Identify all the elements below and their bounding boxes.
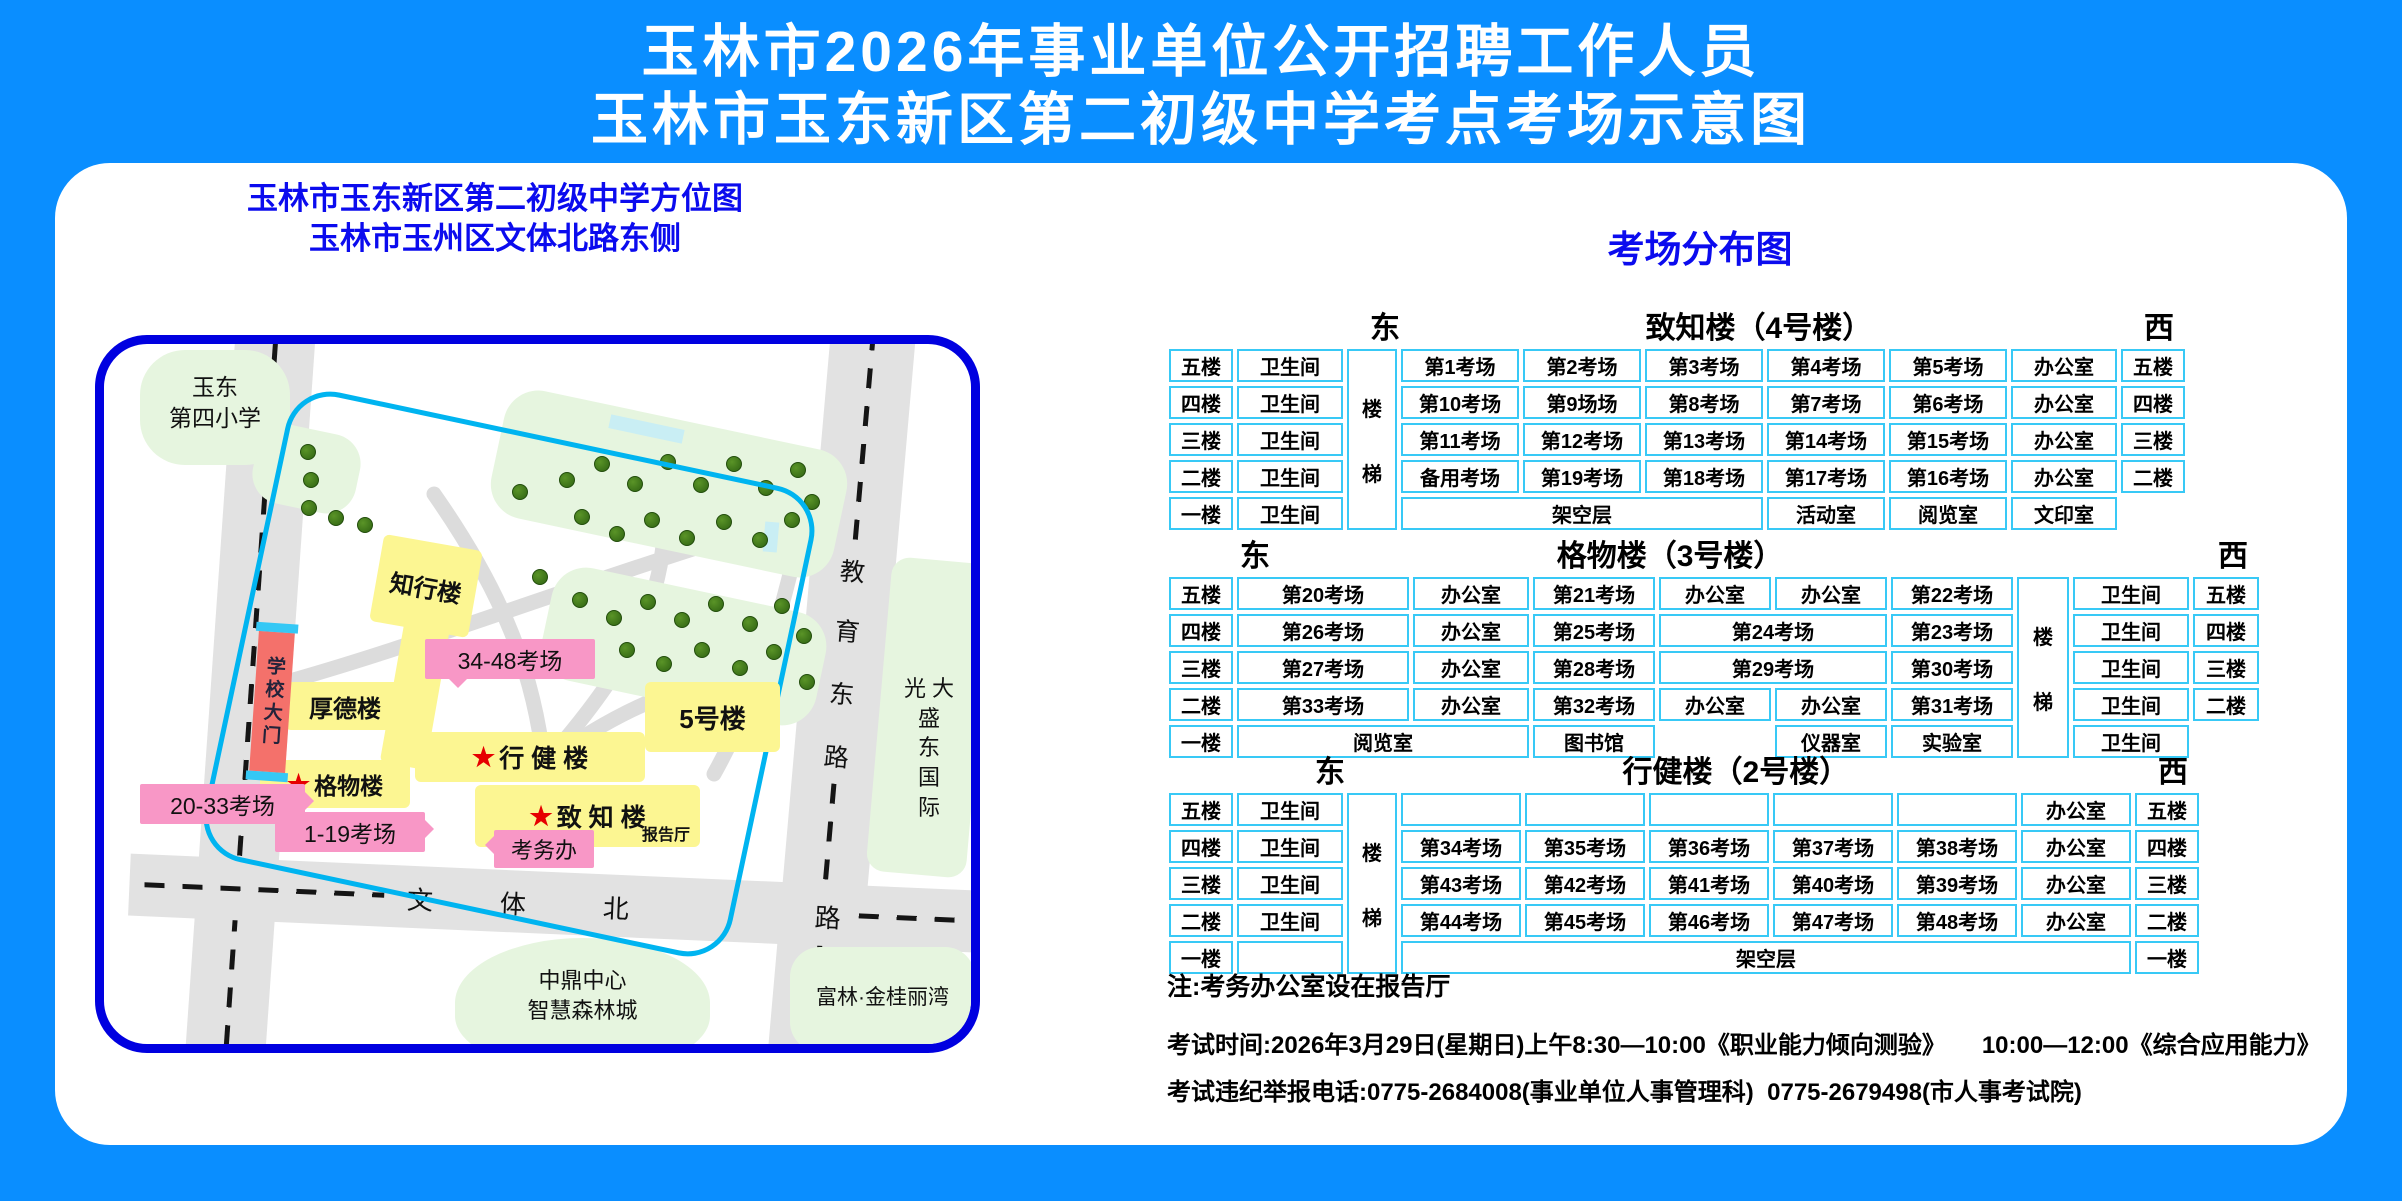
room-cell: 三楼 — [2121, 423, 2185, 456]
room-cell: 第29考场 — [1659, 651, 1887, 684]
room-cell: 第10考场 — [1401, 386, 1519, 419]
room-cell: 第44考场 — [1401, 904, 1521, 937]
room-cell: 第17考场 — [1767, 460, 1885, 493]
room-cell: 架空层 — [1401, 497, 1763, 530]
room-cell: 五楼 — [1169, 349, 1233, 382]
room-cell: 第12考场 — [1523, 423, 1641, 456]
empty-cell — [1897, 793, 2017, 826]
room-cell: 二楼 — [1169, 688, 1233, 721]
room-cell: 办公室 — [1659, 577, 1771, 610]
note-exam-time: 考试时间:2026年3月29日(星期日)上午8:30—10:00《职业能力倾向测… — [1167, 1025, 2321, 1060]
building-xingjianlou-label: 行 健 楼 — [499, 739, 588, 775]
room-cell: 第32考场 — [1533, 688, 1655, 721]
room-cell: 五楼 — [2121, 349, 2185, 382]
room-cell: 办公室 — [1413, 651, 1529, 684]
east-label: 东 — [1315, 747, 1345, 791]
room-cell: 第39考场 — [1897, 867, 2017, 900]
star-icon: ★ — [472, 742, 495, 773]
room-cell: 卫生间 — [1237, 423, 1343, 456]
room-cell: 二楼 — [2135, 904, 2199, 937]
table-xingjianlou: 东行健楼（2号楼）西五楼卫生间楼梯办公室五楼四楼卫生间第34考场第35考场第36… — [1165, 747, 2203, 978]
location-map: 教 育 东 路 文 体 北 路 玉东 第四小学 光 大 — [95, 335, 980, 1053]
room-cell: 二楼 — [2121, 460, 2185, 493]
note-report-phone: 考试违纪举报电话:0775-2684008(事业单位人事管理科) 0775-26… — [1167, 1072, 2321, 1107]
room-cell: 第37考场 — [1773, 830, 1893, 863]
room-cell: 办公室 — [2011, 423, 2117, 456]
room-cell: 第34考场 — [1401, 830, 1521, 863]
title-line1: 玉林市2026年事业单位公开招聘工作人员 — [0, 18, 2402, 86]
room-cell: 办公室 — [1413, 577, 1529, 610]
tag-exam-34-48-label: 34-48考场 — [458, 642, 563, 676]
room-cell: 三楼 — [2193, 651, 2259, 684]
room-cell: 第9场场 — [1523, 386, 1641, 419]
room-cell: 卫生间 — [1237, 793, 1343, 826]
room-cell: 第27考场 — [1237, 651, 1409, 684]
building-name: 格物楼（3号楼） — [1557, 531, 1784, 575]
stair-cell: 楼梯 — [2017, 577, 2069, 758]
room-cell: 卫生间 — [2073, 577, 2189, 610]
room-cell: 办公室 — [2021, 830, 2131, 863]
room-cell: 第31考场 — [1891, 688, 2013, 721]
room-cell: 第41考场 — [1649, 867, 1769, 900]
table-header: 东致知楼（4号楼）西 — [1165, 303, 2189, 345]
room-cell: 第36考场 — [1649, 830, 1769, 863]
tag-exam-34-48: 34-48考场 — [425, 639, 595, 679]
map-subtitle-line2: 玉林市玉州区文体北路东侧 — [55, 219, 935, 259]
room-cell: 第7考场 — [1767, 386, 1885, 419]
tree-icon — [799, 674, 815, 690]
room-cell: 五楼 — [1169, 577, 1233, 610]
tag-exam-office-label: 考务办 — [511, 833, 577, 865]
tree-icon — [796, 628, 812, 644]
tree-icon — [790, 462, 806, 478]
room-cell: 一楼 — [1169, 497, 1233, 530]
room-cell: 三楼 — [1169, 867, 1233, 900]
table-header: 东格物楼（3号楼）西 — [1165, 531, 2263, 573]
room-cell: 五楼 — [2193, 577, 2259, 610]
room-cell: 第18考场 — [1645, 460, 1763, 493]
empty-cell — [2121, 497, 2185, 530]
room-cell: 第5考场 — [1889, 349, 2007, 382]
title-line2: 玉林市玉东新区第二初级中学考点考场示意图 — [0, 86, 2402, 154]
building-zhixinglou-label: 知行楼 — [388, 563, 465, 610]
west-label: 西 — [2158, 747, 2188, 791]
room-cell: 办公室 — [1775, 577, 1887, 610]
room-cell: 第13考场 — [1645, 423, 1763, 456]
room-cell: 第3考场 — [1645, 349, 1763, 382]
room-cell: 办公室 — [2011, 460, 2117, 493]
room-cell: 四楼 — [2135, 830, 2199, 863]
report-hall-label: 报告厅 — [642, 821, 690, 845]
room-cell: 第48考场 — [1897, 904, 2017, 937]
room-cell: 文印室 — [2011, 497, 2117, 530]
empty-cell — [1773, 793, 1893, 826]
room-cell: 三楼 — [1169, 423, 1233, 456]
room-cell: 卫生间 — [1237, 349, 1343, 382]
table-zhizhilou: 东致知楼（4号楼）西五楼卫生间楼梯第1考场第2考场第3考场第4考场第5考场办公室… — [1165, 303, 2189, 534]
west-label: 西 — [2144, 303, 2174, 347]
room-cell: 卫生间 — [2073, 688, 2189, 721]
room-cell: 办公室 — [2011, 386, 2117, 419]
room-cell: 卫生间 — [1237, 830, 1343, 863]
tag-exam-1-19-label: 1-19考场 — [304, 815, 396, 849]
room-cell: 备用考场 — [1401, 460, 1519, 493]
room-cell: 第22考场 — [1891, 577, 2013, 610]
building-name: 行健楼（2号楼） — [1623, 747, 1850, 791]
page-title: 玉林市2026年事业单位公开招聘工作人员 玉林市玉东新区第二初级中学考点考场示意… — [0, 18, 2402, 155]
tag-exam-1-19: 1-19考场 — [275, 812, 425, 852]
empty-cell — [1525, 793, 1645, 826]
building-5haolou-label: 5号楼 — [679, 699, 745, 736]
room-cell: 第28考场 — [1533, 651, 1655, 684]
empty-cell — [1401, 793, 1521, 826]
building-zhizhilou-label: 致 知 楼 — [557, 798, 646, 834]
room-cell: 四楼 — [1169, 830, 1233, 863]
room-cell: 办公室 — [2021, 867, 2131, 900]
rooms-table: 五楼卫生间楼梯办公室五楼四楼卫生间第34考场第35考场第36考场第37考场第38… — [1165, 789, 2203, 978]
room-cell: 办公室 — [1659, 688, 1771, 721]
room-cell: 办公室 — [2011, 349, 2117, 382]
building-5haolou: 5号楼 — [645, 682, 780, 752]
room-cell: 卫生间 — [1237, 904, 1343, 937]
room-cell: 卫生间 — [1237, 867, 1343, 900]
room-cell: 办公室 — [2021, 904, 2131, 937]
room-cell: 卫生间 — [1237, 460, 1343, 493]
tag-exam-office: 考务办 — [494, 830, 594, 868]
room-cell: 三楼 — [1169, 651, 1233, 684]
room-cell: 第15考场 — [1889, 423, 2007, 456]
tag-exam-20-33-label: 20-33考场 — [170, 787, 275, 821]
rooms-table: 五楼第20考场办公室第21考场办公室办公室第22考场楼梯卫生间五楼四楼第26考场… — [1165, 573, 2263, 762]
room-cell: 四楼 — [1169, 614, 1233, 647]
room-cell: 二楼 — [1169, 460, 1233, 493]
room-cell: 卫生间 — [2073, 651, 2189, 684]
room-cell: 卫生间 — [2073, 614, 2189, 647]
star-icon: ★ — [529, 801, 552, 832]
school-gate-label: 学校大门 — [255, 655, 288, 749]
room-cell: 第2考场 — [1523, 349, 1641, 382]
room-cell: 第30考场 — [1891, 651, 2013, 684]
building-name: 致知楼（4号楼） — [1646, 303, 1873, 347]
room-cell: 第8考场 — [1645, 386, 1763, 419]
building-houdelou-label: 厚德楼 — [309, 689, 381, 724]
east-label: 东 — [1240, 531, 1270, 575]
room-cell: 第24考场 — [1659, 614, 1887, 647]
room-cell: 二楼 — [2193, 688, 2259, 721]
content-card: 玉林市玉东新区第二初级中学方位图 玉林市玉州区文体北路东侧 教 育 东 路 文 … — [55, 163, 2347, 1145]
room-cell: 五楼 — [1169, 793, 1233, 826]
room-cell: 卫生间 — [1237, 497, 1343, 530]
empty-cell — [1649, 793, 1769, 826]
room-cell: 第33考场 — [1237, 688, 1409, 721]
room-cell: 办公室 — [1413, 614, 1529, 647]
room-cell: 第23考场 — [1891, 614, 2013, 647]
room-cell: 第35考场 — [1525, 830, 1645, 863]
room-cell: 第45考场 — [1525, 904, 1645, 937]
table-header: 东行健楼（2号楼）西 — [1165, 747, 2203, 789]
stair-cell: 楼梯 — [1347, 793, 1397, 974]
building-houdelou: 厚德楼 — [285, 682, 405, 730]
room-cell: 第42考场 — [1525, 867, 1645, 900]
tree-icon — [726, 456, 742, 472]
room-cell: 第21考场 — [1533, 577, 1655, 610]
room-cell: 第1考场 — [1401, 349, 1519, 382]
room-cell: 第19考场 — [1523, 460, 1641, 493]
room-cell: 四楼 — [1169, 386, 1233, 419]
room-cell: 第25考场 — [1533, 614, 1655, 647]
room-cell: 办公室 — [1413, 688, 1529, 721]
room-cell: 办公室 — [2021, 793, 2131, 826]
room-cell: 第4考场 — [1767, 349, 1885, 382]
room-cell: 第43考场 — [1401, 867, 1521, 900]
room-cell: 四楼 — [2193, 614, 2259, 647]
room-cell: 第38考场 — [1897, 830, 2017, 863]
room-cell: 阅览室 — [1889, 497, 2007, 530]
room-cell: 第26考场 — [1237, 614, 1409, 647]
room-cell: 第16考场 — [1889, 460, 2007, 493]
room-cell: 二楼 — [1169, 904, 1233, 937]
room-cell: 第40考场 — [1773, 867, 1893, 900]
room-cell: 第20考场 — [1237, 577, 1409, 610]
table-gewulou: 东格物楼（3号楼）西五楼第20考场办公室第21考场办公室办公室第22考场楼梯卫生… — [1165, 531, 2263, 762]
rooms-table: 五楼卫生间楼梯第1考场第2考场第3考场第4考场第5考场办公室五楼四楼卫生间第10… — [1165, 345, 2189, 534]
map-subtitle: 玉林市玉东新区第二初级中学方位图 玉林市玉州区文体北路东侧 — [55, 179, 935, 260]
room-cell: 活动室 — [1767, 497, 1885, 530]
room-cell: 办公室 — [1775, 688, 1887, 721]
east-label: 东 — [1370, 303, 1400, 347]
map-subtitle-line1: 玉林市玉东新区第二初级中学方位图 — [55, 179, 935, 219]
room-cell: 三楼 — [2135, 867, 2199, 900]
room-cell: 四楼 — [2121, 386, 2185, 419]
notes: 注:考务办公室设在报告厅 考试时间:2026年3月29日(星期日)上午8:30—… — [1167, 967, 2321, 1119]
room-cell: 第14考场 — [1767, 423, 1885, 456]
note-office: 注:考务办公室设在报告厅 — [1167, 967, 2321, 1003]
room-cell: 第47考场 — [1773, 904, 1893, 937]
room-cell: 第6考场 — [1889, 386, 2007, 419]
poster: 玉林市2026年事业单位公开招聘工作人员 玉林市玉东新区第二初级中学考点考场示意… — [0, 0, 2402, 1201]
building-xingjianlou: ★ 行 健 楼 — [415, 732, 645, 782]
panel-title: 考场分布图 — [1165, 219, 2235, 273]
room-cell: 卫生间 — [1237, 386, 1343, 419]
stair-cell: 楼梯 — [1347, 349, 1397, 530]
room-cell: 第46考场 — [1649, 904, 1769, 937]
room-cell: 五楼 — [2135, 793, 2199, 826]
room-cell: 第11考场 — [1401, 423, 1519, 456]
west-label: 西 — [2218, 531, 2248, 575]
